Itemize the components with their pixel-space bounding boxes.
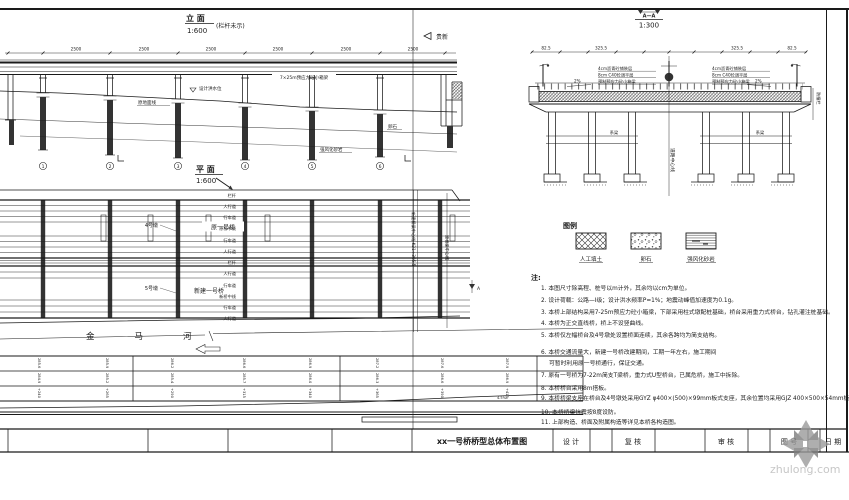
legend-swatch-fill	[576, 233, 606, 249]
cell: 286.6	[440, 373, 444, 384]
pier-no: 4	[244, 164, 247, 170]
edge-label: 行车道	[223, 214, 236, 221]
direction-arrow-icon	[424, 33, 431, 40]
edge-label: 行车道	[223, 237, 236, 244]
section-dim: 82.5	[787, 46, 797, 51]
cell: 285.2	[105, 373, 109, 383]
section-dim: 325.5	[595, 46, 607, 51]
cell: +240	[37, 388, 41, 399]
note-line: 可暂时利用原一号桥通行，保证交通。	[549, 359, 648, 367]
cell: +265	[105, 388, 109, 398]
pier-3	[172, 75, 185, 158]
cell: +390	[440, 388, 444, 399]
span-dim: 2500	[139, 47, 150, 52]
pier-5	[306, 75, 319, 160]
cut-mark-label: A	[477, 286, 481, 292]
note-line: 2. 设计荷载：公路—Ⅰ级；设计洪水频率P=1%；地震动峰值加速度为0.1g。	[541, 296, 737, 304]
cell: 286.2	[170, 358, 174, 368]
cell: 284.9	[37, 373, 41, 384]
edge-label: 栏杆	[228, 192, 237, 199]
cell: 287.2	[375, 358, 379, 368]
elevation-scale: 1:600	[187, 27, 207, 35]
cell: 286.9	[308, 358, 312, 369]
cell: 286.9	[505, 373, 509, 384]
section-dim: 82.5	[541, 46, 551, 51]
elevation-title: 立 面	[186, 13, 205, 23]
drawing-title: xx一号桥桥型总体布置图	[437, 436, 527, 446]
pier-4	[239, 75, 252, 160]
notes: 注: 1. 本图尺寸除高程、桩号以m计外，其余均以cm为单位。 2. 设计荷载：…	[531, 273, 849, 426]
edge-label: 原桥中线	[219, 225, 237, 232]
tie-beam-label: 系梁	[610, 129, 619, 136]
pier-no: 2	[109, 164, 112, 170]
cut-marks	[118, 155, 411, 161]
note-line: 9. 本桥桥梁支座在桥台及4号墩处采用GYZ φ400×(500)×99mm板式…	[541, 394, 849, 402]
section-scale: 1:300	[639, 22, 659, 30]
layer-label: 8cm C40砼调平层	[598, 72, 633, 79]
span-dim: 2500	[341, 47, 352, 52]
span-dim: 2500	[206, 47, 217, 52]
cell: 285.9	[105, 358, 109, 369]
pier-no: 1	[42, 164, 45, 170]
legend-label: 强风化砂岩	[687, 255, 715, 263]
table-row-2: 284.9 285.2 285.4 285.7 286.0 286.3 286.…	[37, 373, 509, 384]
legend-label: 人工填土	[580, 255, 603, 263]
edge-label: 人行道	[223, 270, 236, 277]
legend-label: 卵石	[640, 255, 652, 263]
drawing-canvas: 立 面 1:600 (栏杆未示) 贵新 2500 2500 2500 2500 …	[0, 0, 849, 500]
profile-table: 285.6 285.9 286.2 286.6 286.9 287.2 287.…	[0, 356, 583, 422]
edge-label: 人行道	[223, 315, 236, 322]
cell: 287.6	[440, 358, 444, 369]
water-level-icon	[190, 88, 196, 92]
river-label: 金马河	[86, 331, 232, 342]
cell: +290	[170, 388, 174, 399]
span-dim: 2500	[71, 47, 82, 52]
slope-label: 2%	[574, 79, 581, 84]
cell: 285.4	[170, 373, 174, 384]
cad-sheet: 立 面 1:600 (栏杆未示) 贵新 2500 2500 2500 2500 …	[0, 0, 849, 500]
edge-label: 新桥中线	[219, 293, 237, 300]
flood-level-label: 设计洪水位	[199, 85, 222, 92]
barrier-label: 防撞栏	[815, 92, 822, 105]
section-view: A—A 1:300 82.5 325.5 325.5 82.5 4cm沥青砼铺装…	[529, 10, 822, 196]
span-dim: 2500	[273, 47, 284, 52]
pier-note: 5号墩	[145, 285, 158, 292]
pier-2	[104, 75, 117, 155]
girder-label: 7×25m预应力砼小箱梁	[280, 74, 329, 81]
cell: 287.9	[505, 358, 509, 369]
legend-title: 图例	[563, 221, 577, 230]
note-line: 5. 本桥仅左幅桥台及4号墩处设置桥面连续，其余各跨均为简支结构。	[541, 331, 720, 339]
pier-no: 6	[379, 164, 382, 170]
new-centerline-label: 新建桥梁中心线 K21+305.5	[410, 212, 417, 267]
note-line: 4. 本桥为正交直线桥，桥上不设竖曲线。	[541, 319, 647, 327]
centerline-label: 道路中心线	[669, 148, 676, 172]
cell: +315	[242, 388, 246, 398]
cell: +365	[375, 388, 379, 398]
ground-line-label: 原地面线	[138, 99, 156, 106]
legend-swatch-pebble	[631, 233, 661, 249]
plan-scale: 1:600	[196, 177, 216, 185]
note-line: 10. 本桥桥梁抗震按8度设防。	[541, 408, 620, 416]
cell: 285.7	[242, 373, 246, 383]
deck-slab	[539, 92, 801, 102]
watermark-text: zhulong.com	[770, 463, 840, 476]
rock-label: 强风化砂岩	[320, 146, 343, 153]
direction-label: 贵新	[436, 33, 448, 41]
slope-note: 4.5‰	[497, 396, 508, 400]
cell: 285.6	[37, 358, 41, 369]
cell: +340	[308, 388, 312, 399]
note-line: 1. 本图尺寸除高程、桩号以m计外，其余均以cm为单位。	[541, 284, 690, 292]
edge-label: 人行道	[223, 248, 236, 255]
cell: 286.3	[375, 373, 379, 383]
plan-title: 平 面	[196, 165, 215, 174]
note-line: 3. 本桥上部结构采用7-25m预应力砼小箱梁，下部采用柱式墩配桩基础，桥台采用…	[541, 308, 834, 316]
cell: 286.0	[308, 373, 312, 384]
pier-no: 5	[311, 164, 314, 170]
table-row-1: 285.6 285.9 286.2 286.6 286.9 287.2 287.…	[37, 358, 509, 369]
edge-label: 栏杆	[228, 259, 237, 266]
table-row-3: +240 +265 +290 +315 +340 +365 +390 +415	[37, 388, 509, 399]
flow-arrow-icon	[196, 345, 220, 354]
section-title: A—A	[643, 14, 656, 20]
tie-beam-label: 系梁	[756, 129, 765, 136]
plan-view: 平 面 1:600	[0, 165, 583, 354]
field-review: 审 核	[718, 437, 734, 446]
note-line: 7. 原有一号桥为7-22m简支T梁桥，重力式U型桥台，已属危桥，施工中拆除。	[541, 371, 743, 379]
pier-6	[374, 75, 387, 157]
railing-posts	[537, 84, 803, 90]
title-block: xx一号桥桥型总体布置图 设 计 复 核 审 核 图 号 日 期	[0, 429, 847, 452]
pier-note: 4号墩	[145, 222, 158, 229]
edge-label: 行车道	[223, 304, 236, 311]
elevation-view: 立 面 1:600 (栏杆未示) 贵新 2500 2500 2500 2500 …	[0, 13, 462, 170]
plan-edge-labels: 栏杆 人行道 行车道 原桥中线 行车道 人行道 栏杆 人行道 行车道 新桥中线 …	[219, 192, 237, 322]
edge-label: 行车道	[223, 282, 236, 289]
old-centerline-label: 原桥梁中心线	[444, 235, 451, 261]
span-dim: 2500	[408, 47, 419, 52]
slope-label: 2%	[755, 79, 762, 84]
plan-arrow-icon	[229, 186, 234, 191]
pier-no: 3	[177, 164, 180, 170]
field-design: 设 计	[563, 437, 579, 446]
section-dim: 325.5	[731, 46, 743, 51]
field-check: 复 核	[625, 437, 641, 446]
note-line: 11. 上部构造、桥面及附属构造等详见本桥各构造图。	[541, 418, 680, 426]
right-abutment	[441, 75, 462, 149]
legend-swatch-rock	[686, 233, 716, 249]
notes-title: 注:	[531, 273, 541, 282]
layer-label: 8cm C40砼调平层	[712, 72, 747, 79]
deck-layer-labels-left: 4cm沥青砼铺装层 8cm C40砼调平层 预制预应力砼小箱梁	[598, 65, 656, 85]
pier-1	[37, 75, 50, 150]
legend: 图例 人工填土 卵石 强风化砂岩	[563, 221, 716, 263]
note-line: 8. 本桥桥台采用8m搭板。	[541, 384, 610, 392]
note-line: 6. 本桥交通流量大，新建一号桥改建期间，工期一年左右，施工期间	[541, 348, 717, 356]
elevation-subtitle: (栏杆未示)	[216, 22, 245, 30]
pebble-label: 卵石	[388, 123, 397, 130]
watermark-logo-icon	[782, 420, 830, 468]
cell: 286.6	[242, 358, 246, 369]
layer-label: 4cm沥青砼铺装层	[598, 65, 632, 72]
edge-label: 人行道	[223, 203, 236, 210]
layer-label: 4cm沥青砼铺装层	[712, 65, 746, 72]
